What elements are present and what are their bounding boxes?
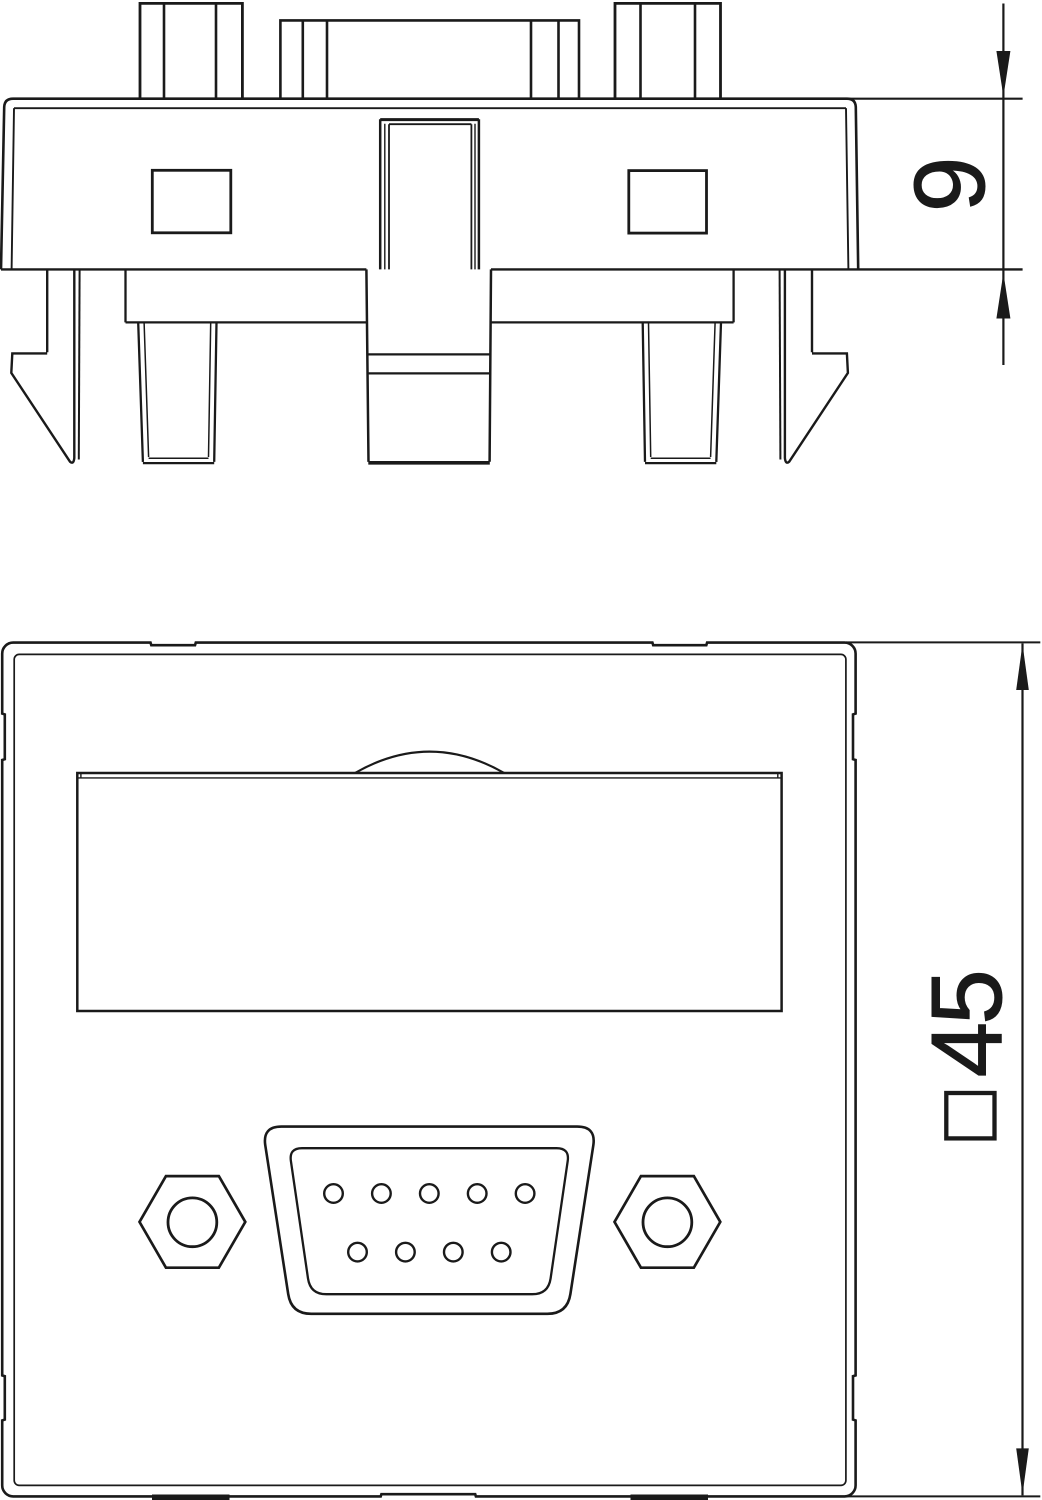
svg-text:9: 9 xyxy=(894,157,1006,213)
svg-text:45: 45 xyxy=(911,972,1023,1077)
